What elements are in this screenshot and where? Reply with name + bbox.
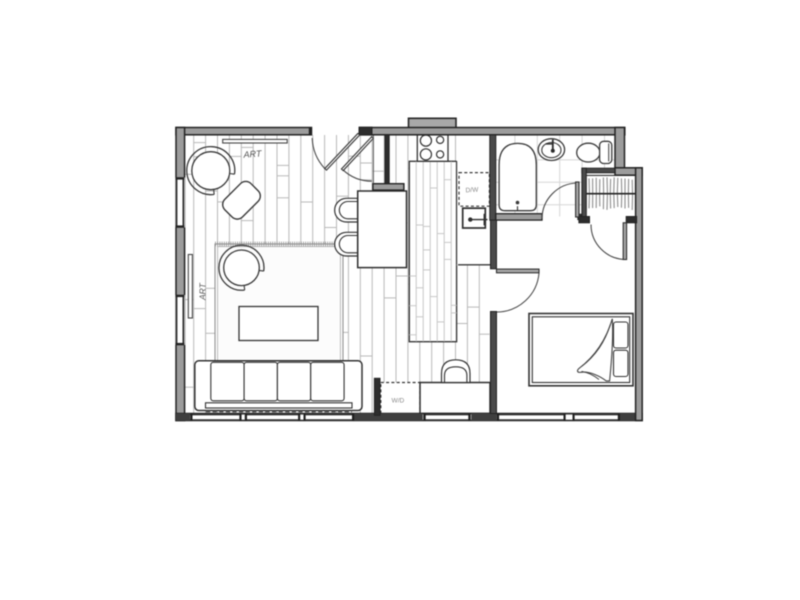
svg-text:ART: ART: [242, 148, 263, 159]
svg-text:D/W: D/W: [465, 187, 479, 195]
svg-text:W/D: W/D: [392, 398, 405, 405]
svg-text:ART: ART: [198, 282, 208, 301]
